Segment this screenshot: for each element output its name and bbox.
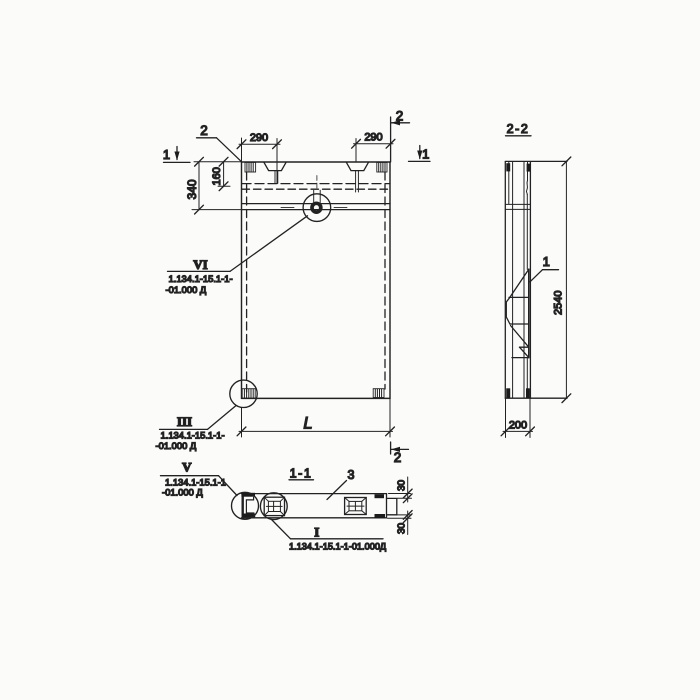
svg-text:1-1: 1-1	[290, 467, 313, 481]
svg-text:340: 340	[185, 179, 199, 199]
svg-text:2540: 2540	[553, 291, 565, 315]
svg-text:-01.000 Д: -01.000 Д	[156, 440, 197, 451]
svg-text:1.134.1-15.1-1-01.000Д: 1.134.1-15.1-1-01.000Д	[289, 542, 387, 552]
svg-text:2: 2	[200, 123, 208, 138]
svg-text:L: L	[303, 415, 312, 433]
svg-text:1: 1	[422, 147, 429, 162]
svg-text:VI: VI	[193, 257, 207, 272]
svg-text:1.134.1-15.1-1-: 1.134.1-15.1-1-	[169, 273, 233, 284]
svg-text:290: 290	[250, 132, 268, 144]
svg-text:V: V	[182, 460, 192, 475]
svg-text:200: 200	[509, 420, 527, 432]
svg-text:160: 160	[211, 167, 223, 185]
svg-text:1: 1	[163, 147, 170, 162]
svg-text:1.134.1-15.1-1-: 1.134.1-15.1-1-	[161, 430, 225, 441]
svg-text:2: 2	[394, 450, 402, 465]
svg-text:-01.000 Д: -01.000 Д	[162, 487, 203, 498]
svg-text:2-2: 2-2	[507, 122, 530, 136]
svg-text:1: 1	[543, 254, 550, 269]
svg-text:30: 30	[397, 522, 408, 534]
svg-text:3: 3	[348, 468, 355, 482]
svg-text:-01.000 Д: -01.000 Д	[166, 284, 207, 295]
svg-text:30: 30	[397, 479, 408, 491]
svg-text:I: I	[314, 525, 319, 540]
svg-text:III: III	[177, 414, 192, 429]
svg-text:290: 290	[364, 132, 382, 144]
